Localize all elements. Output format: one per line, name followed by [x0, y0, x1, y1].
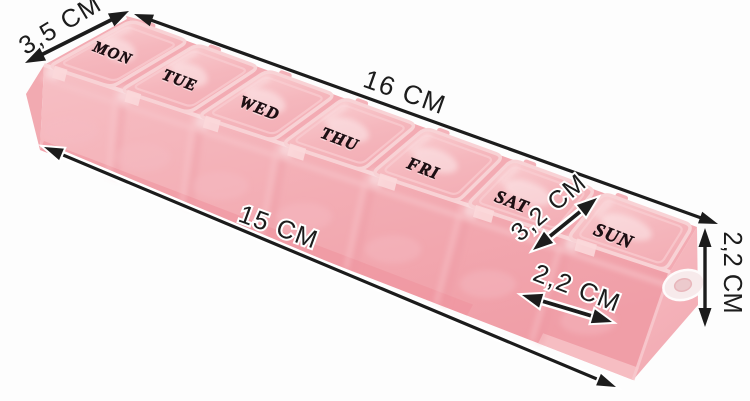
- svg-text:2,2 CM: 2,2 CM: [718, 231, 746, 313]
